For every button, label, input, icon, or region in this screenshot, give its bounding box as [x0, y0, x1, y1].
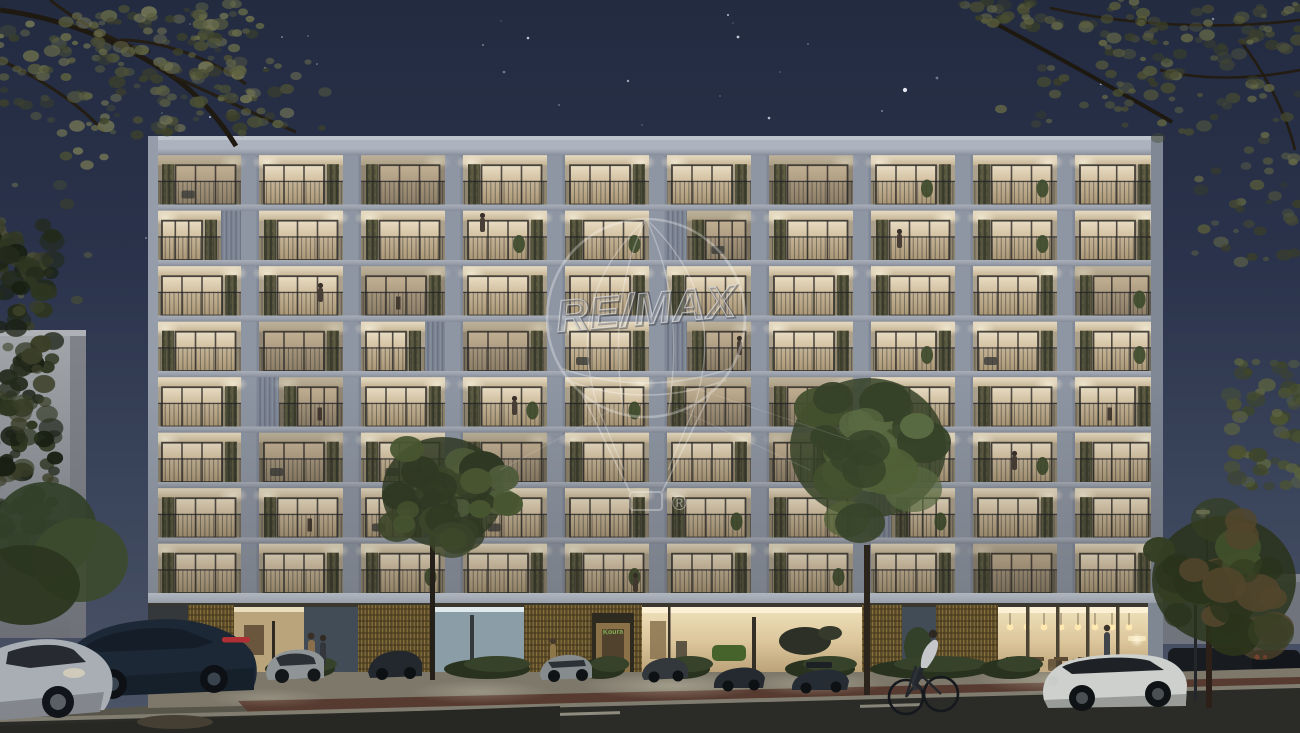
svg-text:®: ®: [672, 493, 687, 515]
svg-text:Koura: Koura: [603, 629, 624, 637]
